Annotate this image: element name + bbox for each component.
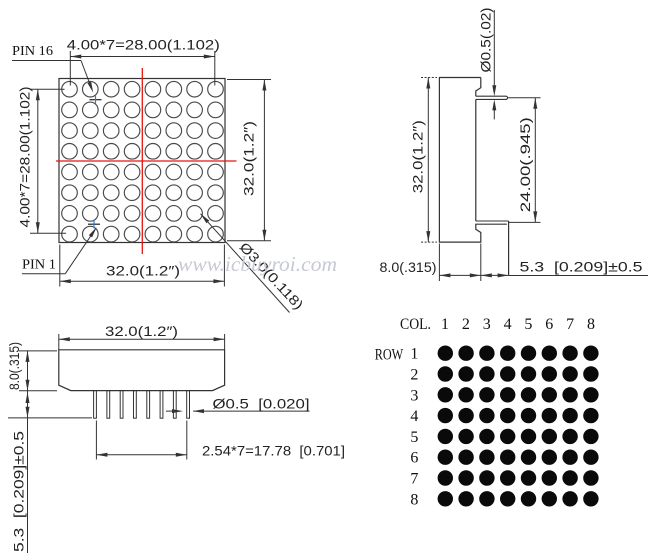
svg-text:32.0(1.2″): 32.0(1.2″)	[106, 263, 180, 279]
svg-text:Ø3.0(0.118): Ø3.0(0.118)	[237, 239, 307, 312]
svg-text:COL.: COL.	[400, 316, 431, 333]
svg-text:4: 4	[504, 316, 512, 333]
svg-text:1: 1	[441, 316, 449, 333]
svg-text:4: 4	[410, 408, 418, 425]
svg-text:5.3 [0.209]±0.5: 5.3 [0.209]±0.5	[11, 431, 27, 552]
svg-text:1: 1	[410, 346, 418, 363]
svg-text:4.00*7=28.00(1.102): 4.00*7=28.00(1.102)	[67, 36, 220, 52]
svg-text:2: 2	[462, 316, 470, 333]
svg-text:4.00*7=28.00(1.102): 4.00*7=28.00(1.102)	[17, 87, 33, 228]
svg-text:ROW: ROW	[375, 347, 404, 364]
svg-text:32.0(1.2″): 32.0(1.2″)	[241, 121, 257, 196]
svg-text:PIN 1: PIN 1	[22, 257, 56, 272]
svg-text:www.icbuyroi.com: www.icbuyroi.com	[178, 252, 337, 276]
svg-text:Ø0.5(.02): Ø0.5(.02)	[478, 8, 494, 73]
svg-text:32.0(1.2″): 32.0(1.2″)	[105, 323, 178, 339]
svg-text:6: 6	[410, 450, 418, 467]
svg-text:5: 5	[524, 316, 532, 333]
svg-text:24.00(.945): 24.00(.945)	[517, 117, 533, 212]
svg-text:6: 6	[545, 316, 553, 333]
svg-text:5: 5	[410, 429, 418, 446]
svg-text:2.54*7=17.78 [0.701]: 2.54*7=17.78 [0.701]	[202, 443, 345, 459]
svg-text:7: 7	[566, 316, 574, 333]
svg-text:Ø0.5 [0.020]: Ø0.5 [0.020]	[213, 396, 310, 412]
svg-text:8: 8	[587, 316, 595, 333]
svg-text:8: 8	[410, 491, 418, 508]
svg-text:32.0(1.2″): 32.0(1.2″)	[410, 120, 426, 193]
svg-text:5.3 [0.209]±0.5: 5.3 [0.209]±0.5	[520, 259, 643, 275]
svg-text:3: 3	[483, 316, 491, 333]
svg-text:PIN 16: PIN 16	[12, 43, 53, 58]
svg-text:3: 3	[410, 387, 418, 404]
svg-text:7: 7	[410, 471, 418, 488]
svg-text:8.0(.315): 8.0(.315)	[7, 342, 22, 390]
svg-text:2: 2	[410, 367, 418, 384]
svg-text:8.0(.315): 8.0(.315)	[380, 259, 437, 275]
